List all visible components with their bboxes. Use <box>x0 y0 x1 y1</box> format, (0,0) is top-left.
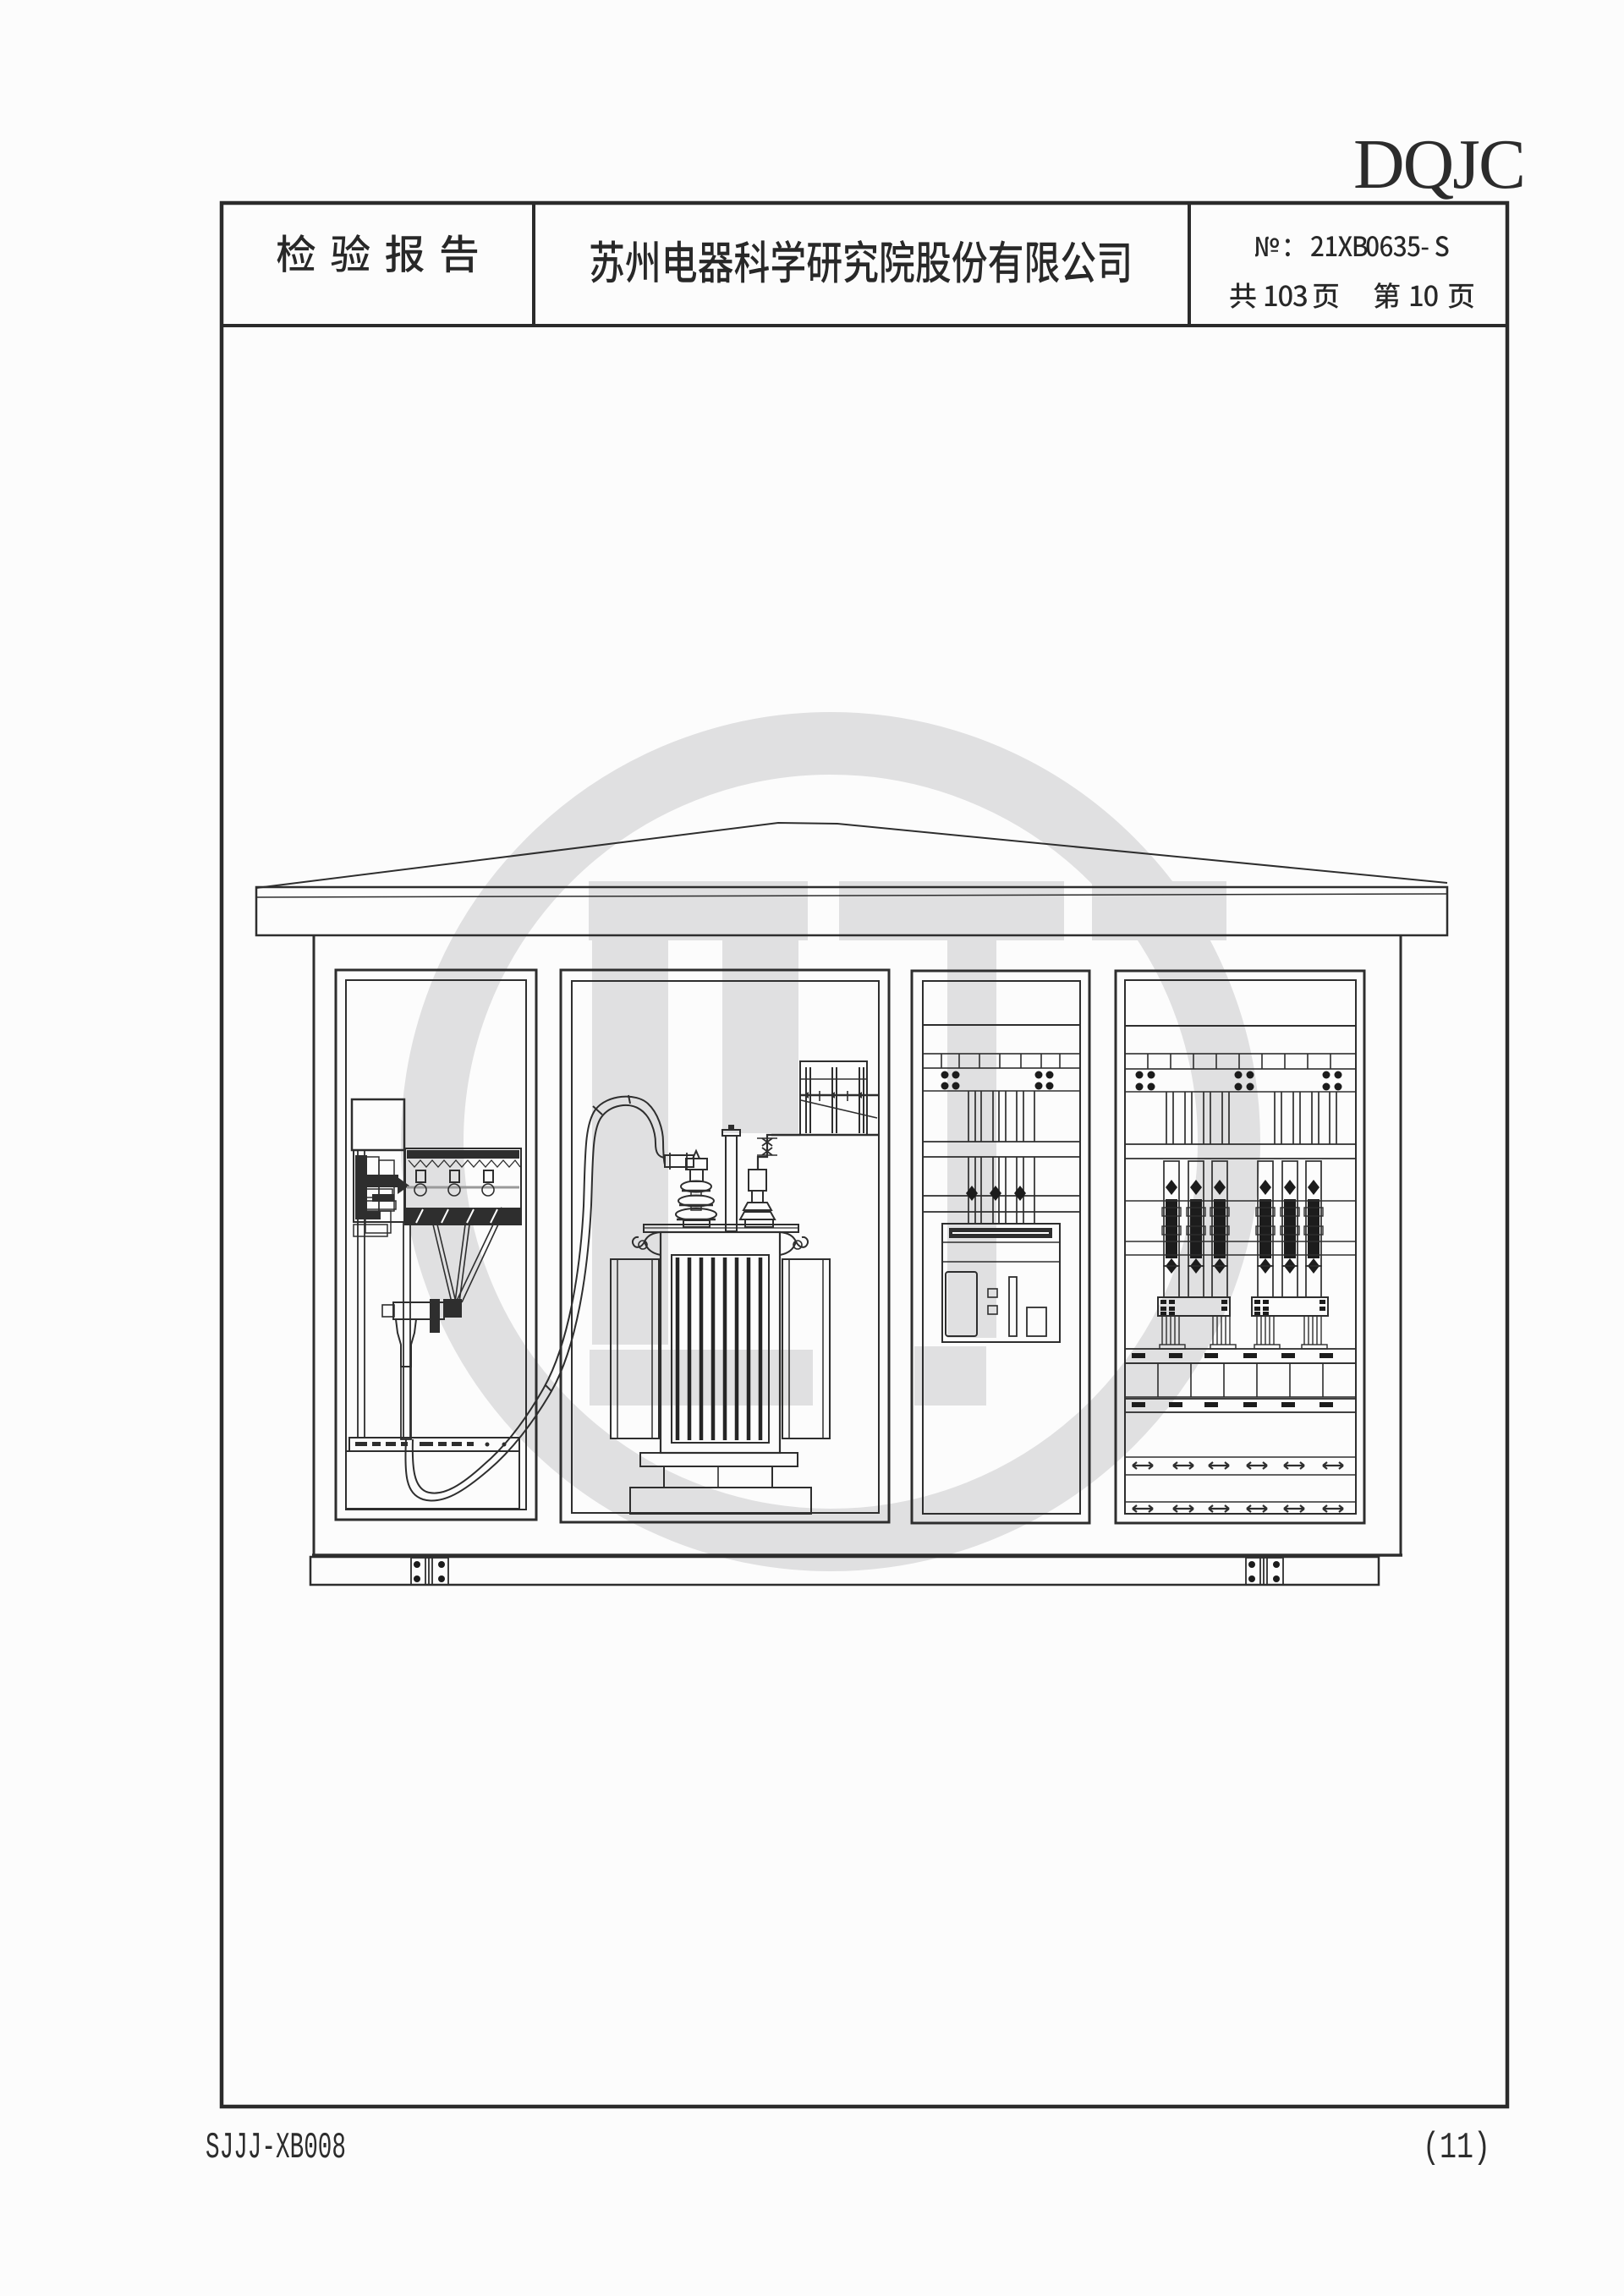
svg-text:SJJJ-XB008: SJJJ-XB008 <box>206 2127 346 2169</box>
svg-text:(11): (11) <box>1423 2127 1490 2169</box>
svg-text:DQJC: DQJC <box>1353 125 1526 204</box>
